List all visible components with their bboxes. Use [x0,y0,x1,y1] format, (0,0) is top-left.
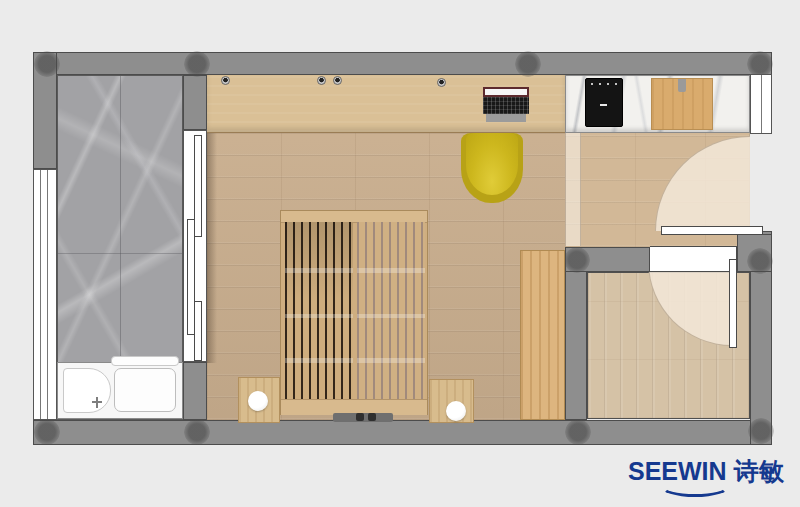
cooktop-knob-dot [591,83,593,85]
top-wall [33,52,772,75]
column [184,51,210,77]
slipper [356,413,364,421]
cooktop-knob-dot [615,83,617,85]
column [184,419,210,445]
desk-chair [461,133,523,203]
bed-slat-panel-right [357,222,425,399]
column [565,419,591,445]
bathtub-faucet-handle [92,401,102,403]
cutting-board [651,78,713,130]
slipper [368,413,376,421]
slat-rail-highlight [285,268,353,273]
balcony-partition-lower [183,362,207,420]
sliding-panel [194,135,202,237]
desk-knob [437,78,446,87]
slat-rail-highlight [285,358,353,363]
tile-seam-horizontal [58,253,182,254]
slat-rail-highlight [285,314,353,318]
slat-rail-highlight [357,358,425,363]
column [34,51,60,77]
sliding-panel [194,301,202,361]
column [748,418,774,444]
room-door-leaf [729,259,737,348]
balcony-partition-upper [183,75,207,130]
slat-rail-highlight [357,314,425,318]
bathtub [57,362,183,419]
column [747,248,773,274]
induction-cooktop [585,78,623,127]
bottom-wall [33,420,772,445]
balcony-sliding-door [183,130,207,362]
entrance-door-leaf [661,226,763,235]
bed-slat-panel-left [285,222,353,399]
bathtub-basin [114,368,176,412]
column [564,247,590,273]
kitchen-window [750,74,772,134]
bathtub-shelf [111,356,179,366]
chair-seat [466,133,518,195]
cooktop-knob-dot [607,83,609,85]
brand-logo-cjk: 诗敏 [734,459,784,484]
desk-knob [317,76,326,85]
board-handle [678,79,686,92]
desk-knob [221,76,230,85]
cooktop-display [600,104,607,106]
column [34,419,60,445]
laptop-screen [483,87,529,97]
slat-rail-highlight [357,268,425,273]
room-doorway-opening [650,246,737,272]
curtain-shadow [207,133,217,363]
logo-swoosh-icon [660,475,730,497]
bathtub-seat [63,368,111,413]
wardrobe-cabinet [520,250,565,420]
sphere-lamp-left [248,391,268,411]
brand-logo: SEEWIN 诗敏 [628,449,798,493]
slat-shading [285,222,353,302]
floor-plan-canvas: SEEWIN 诗敏 [0,0,800,507]
laptop-keyboard [483,97,529,114]
sphere-lamp-right [446,401,466,421]
cooktop-knob-dot [599,83,601,85]
left-wall-window [33,169,57,420]
bed [280,210,428,415]
desk-knob [333,76,342,85]
column [515,51,541,77]
glass-partition [565,133,581,246]
laptop-base [486,114,526,122]
